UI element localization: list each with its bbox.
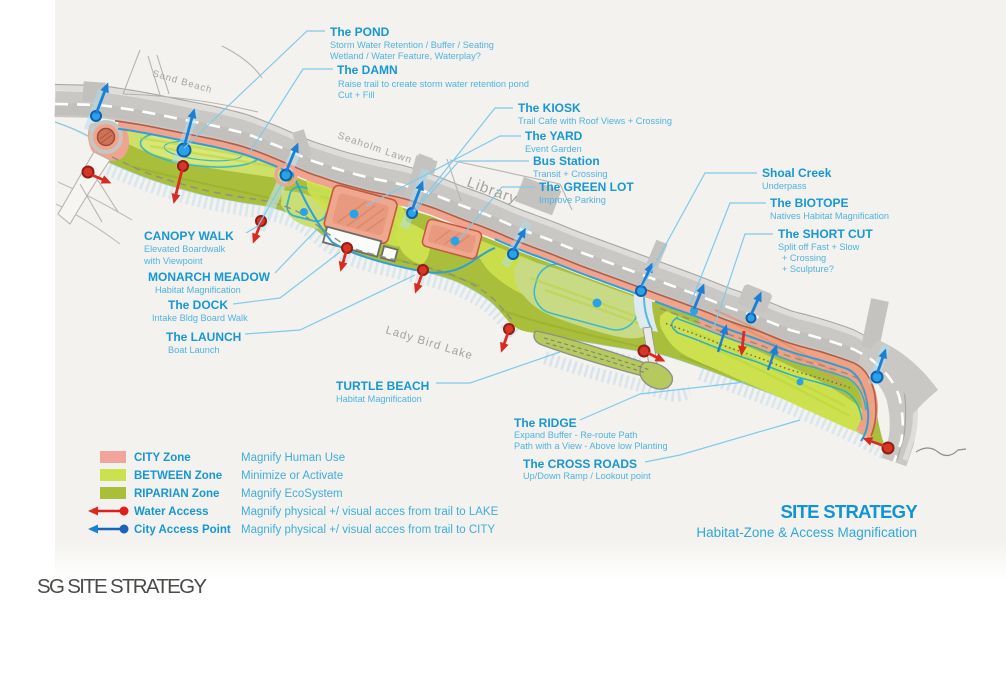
svg-text:BETWEEN Zone: BETWEEN Zone — [134, 470, 222, 482]
svg-text:The POND: The POND — [330, 25, 390, 39]
svg-text:The BIOTOPE: The BIOTOPE — [770, 196, 848, 210]
svg-text:TURTLE BEACH: TURTLE BEACH — [336, 379, 429, 393]
svg-text:+ Crossing: + Crossing — [782, 253, 826, 263]
svg-text:City Access Point: City Access Point — [134, 524, 231, 536]
svg-text:The KIOSK: The KIOSK — [518, 101, 581, 115]
svg-text:Magnify physical +/ visual acc: Magnify physical +/ visual acces from tr… — [241, 506, 499, 518]
svg-text:Magnify Human Use: Magnify Human Use — [241, 452, 345, 464]
svg-text:SITE STRATEGY: SITE STRATEGY — [780, 501, 918, 522]
svg-text:The DOCK: The DOCK — [168, 298, 228, 312]
svg-text:The YARD: The YARD — [525, 129, 583, 143]
svg-text:Path with a View - Above low P: Path with a View - Above low Planting — [514, 441, 668, 451]
svg-text:Intake Bldg Board Walk: Intake Bldg Board Walk — [152, 313, 248, 323]
svg-text:Bus Station: Bus Station — [533, 154, 600, 168]
svg-text:Wetland / Water Feature, Water: Wetland / Water Feature, Waterplay? — [330, 51, 481, 61]
svg-text:Raise trail to create storm wa: Raise trail to create storm water retent… — [338, 79, 529, 89]
svg-text:Magnify EcoSystem: Magnify EcoSystem — [241, 488, 343, 500]
svg-text:Boat Launch: Boat Launch — [168, 345, 220, 355]
svg-text:Habitat Magnification: Habitat Magnification — [336, 394, 422, 404]
svg-text:Natives Habitat Magnification: Natives Habitat Magnification — [770, 211, 889, 221]
svg-text:The DAMN: The DAMN — [337, 63, 398, 77]
svg-text:Transit + Crossing: Transit + Crossing — [533, 169, 607, 179]
svg-text:Habitat-Zone & Access Magnific: Habitat-Zone & Access Magnification — [696, 525, 917, 540]
svg-text:Improve Parking: Improve Parking — [539, 195, 606, 205]
svg-text:Shoal Creek: Shoal Creek — [762, 166, 832, 180]
svg-text:Habitat Magnification: Habitat Magnification — [155, 285, 241, 295]
svg-text:Underpass: Underpass — [762, 181, 807, 191]
svg-text:Trail Cafe with Roof Views + C: Trail Cafe with Roof Views + Crossing — [518, 116, 672, 126]
svg-text:MONARCH MEADOW: MONARCH MEADOW — [148, 270, 271, 284]
svg-text:Expand Buffer - Re-route Path: Expand Buffer - Re-route Path — [514, 430, 637, 440]
svg-text:CITY Zone: CITY Zone — [134, 452, 191, 464]
svg-text:Minimize or Activate: Minimize or Activate — [241, 470, 343, 482]
svg-text:CANOPY WALK: CANOPY WALK — [144, 229, 234, 243]
svg-text:RIPARIAN Zone: RIPARIAN Zone — [134, 488, 219, 500]
svg-text:with Viewpoint: with Viewpoint — [143, 256, 203, 266]
svg-text:Split off Fast + Slow: Split off Fast + Slow — [778, 242, 860, 252]
svg-text:Up/Down Ramp / Lookout point: Up/Down Ramp / Lookout point — [523, 471, 651, 481]
svg-text:Event Garden: Event Garden — [525, 144, 582, 154]
svg-text:Cut + Fill: Cut + Fill — [338, 90, 375, 100]
svg-text:The GREEN LOT: The GREEN LOT — [539, 180, 634, 194]
svg-text:Storm Water Retention / Buffer: Storm Water Retention / Buffer / Seating — [330, 40, 494, 50]
svg-text:Magnify physical +/ visual acc: Magnify physical +/ visual acces from tr… — [241, 524, 495, 536]
svg-text:The RIDGE: The RIDGE — [514, 416, 577, 430]
svg-text:Elevated Boardwalk: Elevated Boardwalk — [144, 244, 226, 254]
svg-text:The CROSS ROADS: The CROSS ROADS — [523, 457, 637, 471]
svg-text:The SHORT CUT: The SHORT CUT — [778, 227, 873, 241]
svg-text:+ Sculpture?: + Sculpture? — [782, 264, 834, 274]
svg-text:The LAUNCH: The LAUNCH — [166, 330, 241, 344]
svg-text:Water Access: Water Access — [134, 506, 209, 518]
svg-text:SG SITE STRATEGY: SG SITE STRATEGY — [37, 575, 207, 598]
